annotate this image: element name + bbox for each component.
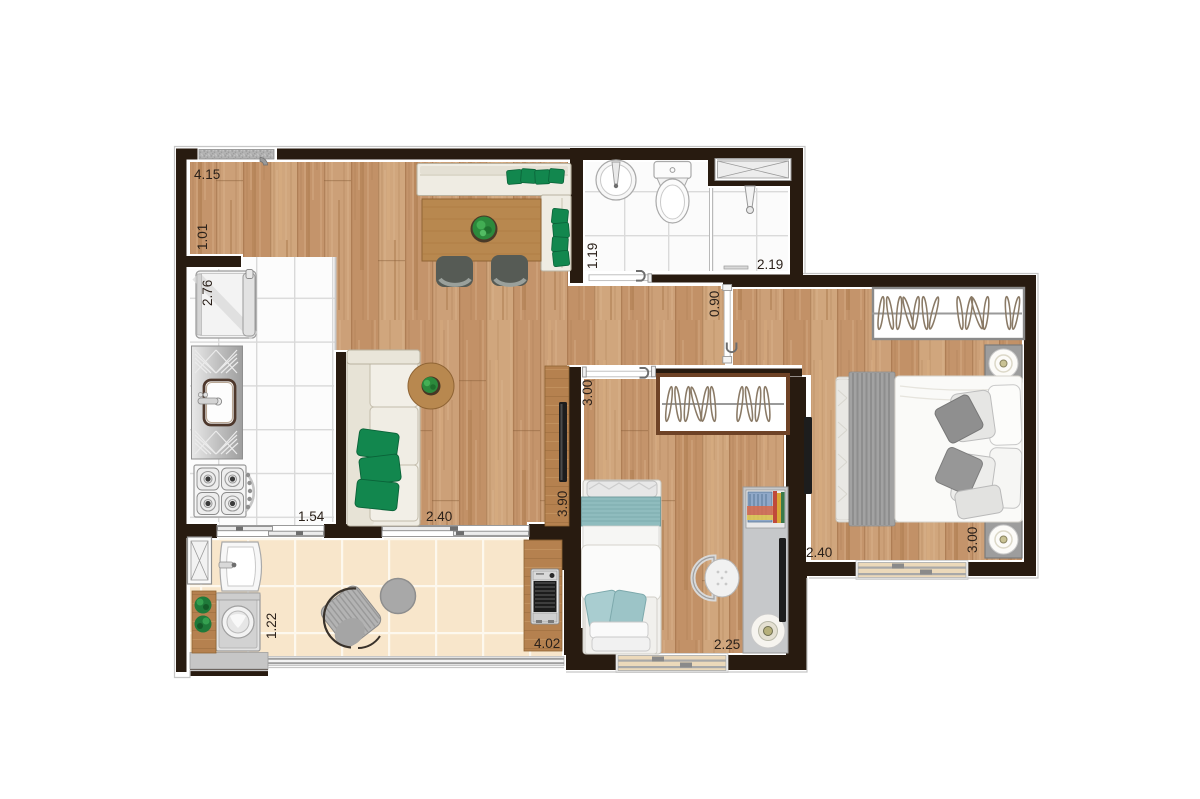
svg-text:4.02: 4.02 <box>534 636 560 651</box>
svg-text:2.25: 2.25 <box>714 637 740 652</box>
svg-text:2.19: 2.19 <box>757 257 783 272</box>
svg-text:3.00: 3.00 <box>580 380 595 406</box>
svg-text:1.19: 1.19 <box>585 243 600 269</box>
svg-text:1.22: 1.22 <box>264 613 279 639</box>
svg-text:3.90: 3.90 <box>555 491 570 517</box>
svg-text:2.40: 2.40 <box>806 545 832 560</box>
svg-text:2.76: 2.76 <box>200 280 215 306</box>
svg-text:0.90: 0.90 <box>707 291 722 317</box>
svg-text:3.00: 3.00 <box>965 527 980 553</box>
svg-text:2.40: 2.40 <box>426 509 452 524</box>
svg-text:4.15: 4.15 <box>194 167 220 182</box>
svg-text:1.54: 1.54 <box>298 509 325 524</box>
svg-text:1.01: 1.01 <box>195 224 210 250</box>
